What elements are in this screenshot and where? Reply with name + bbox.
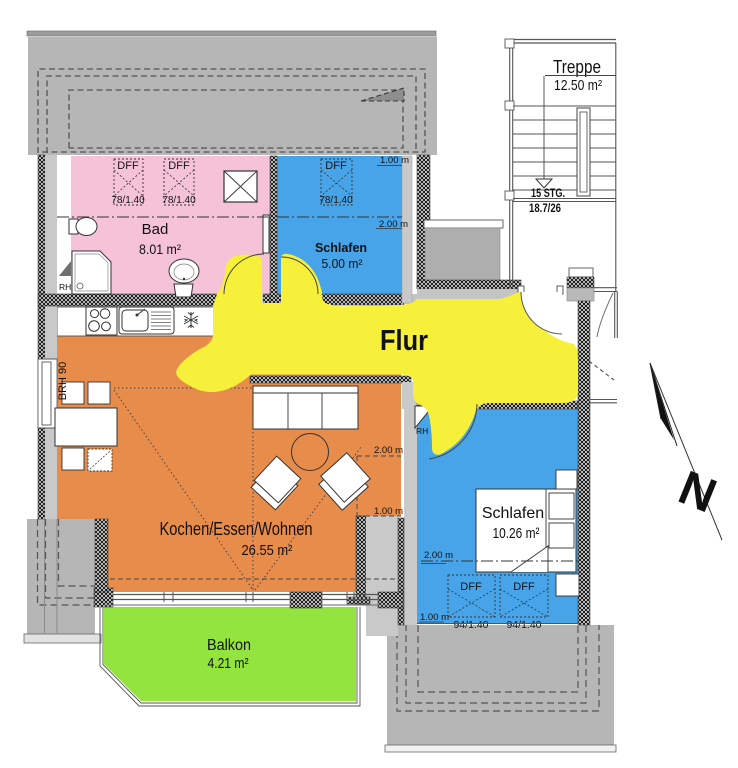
svg-text:15 STG.: 15 STG.	[531, 186, 565, 200]
svg-text:Flur: Flur	[380, 325, 428, 357]
svg-text:Kochen/Essen/Wohnen: Kochen/Essen/Wohnen	[160, 519, 313, 539]
svg-text:2.00 m: 2.00 m	[374, 445, 403, 456]
svg-text:DFF: DFF	[168, 160, 190, 172]
svg-text:78/1.40: 78/1.40	[319, 195, 353, 206]
svg-text:12.50 m²: 12.50 m²	[554, 78, 602, 94]
svg-text:18.7/26: 18.7/26	[529, 201, 561, 215]
svg-text:RH: RH	[416, 426, 428, 436]
svg-text:Schlafen: Schlafen	[482, 505, 544, 522]
svg-text:10.26 m²: 10.26 m²	[493, 525, 540, 542]
svg-text:1.00 m: 1.00 m	[380, 155, 409, 166]
svg-text:DFF: DFF	[117, 160, 139, 172]
svg-text:94/1.40: 94/1.40	[453, 619, 488, 631]
svg-text:BRH 90: BRH 90	[57, 362, 69, 401]
svg-text:78/1.40: 78/1.40	[162, 195, 196, 206]
svg-text:DFF: DFF	[460, 581, 482, 593]
svg-text:26.55 m²: 26.55 m²	[242, 543, 293, 559]
svg-text:4.21 m²: 4.21 m²	[208, 656, 249, 672]
svg-text:1.00 m: 1.00 m	[420, 612, 449, 623]
svg-text:Bad: Bad	[142, 221, 169, 238]
svg-text:RH: RH	[59, 282, 71, 292]
svg-text:DFF: DFF	[325, 160, 347, 172]
svg-text:Balkon: Balkon	[207, 637, 251, 654]
svg-text:1.00 m: 1.00 m	[374, 506, 403, 517]
svg-text:78/1.40: 78/1.40	[111, 195, 145, 206]
svg-text:Schlafen: Schlafen	[315, 241, 367, 255]
svg-text:DFF: DFF	[513, 581, 535, 593]
svg-text:Treppe: Treppe	[553, 57, 601, 77]
svg-text:8.01 m²: 8.01 m²	[139, 242, 181, 257]
svg-text:94/1.40: 94/1.40	[506, 619, 541, 631]
svg-text:2.00 m: 2.00 m	[424, 550, 453, 561]
svg-text:5.00 m²: 5.00 m²	[322, 256, 364, 271]
